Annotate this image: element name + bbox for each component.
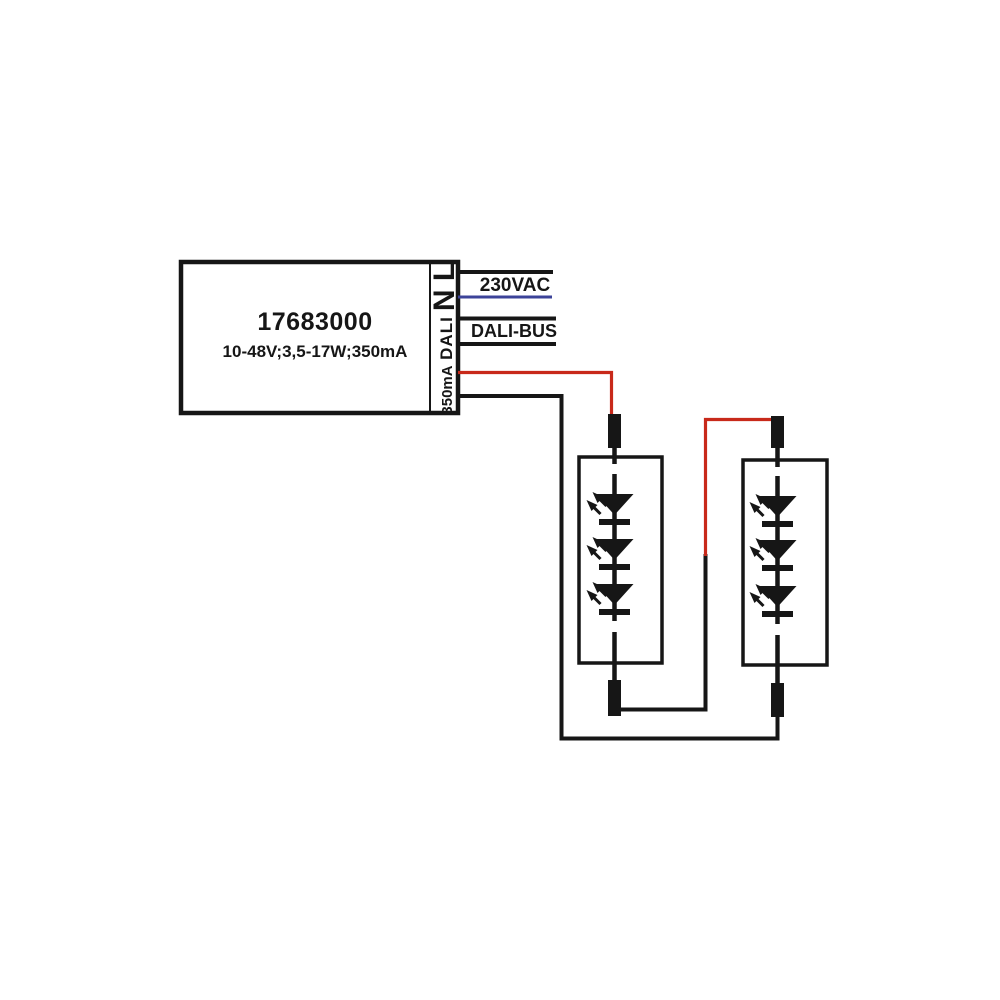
led-icon — [750, 494, 797, 527]
driver-model: 17683000 — [257, 308, 372, 336]
module-2-top-connector — [771, 416, 784, 448]
led-module-1 — [579, 414, 662, 716]
module-1-outline — [579, 457, 662, 663]
led-icon — [587, 582, 634, 615]
module-1-top-connector — [608, 414, 621, 448]
module-1-bottom-connector — [608, 680, 621, 716]
led-icon — [750, 584, 797, 617]
terminal-label-mains: N L — [428, 263, 461, 311]
driver-spec: 10-48V;3,5-17W;350mA — [223, 342, 408, 361]
led-icon — [750, 538, 797, 571]
wiring-diagram: 17683000 10-48V;3,5-17W;350mA N L DALI 3… — [0, 0, 1000, 1000]
led-module-2 — [743, 416, 827, 717]
label-dali-bus: DALI-BUS — [471, 321, 557, 341]
terminal-label-dali: DALI — [437, 316, 456, 360]
led-icon — [587, 537, 634, 570]
wire-series-link-red — [706, 420, 775, 557]
terminal-label-output: 350mA — [439, 365, 456, 414]
led-icon — [587, 492, 634, 525]
driver-box — [181, 262, 458, 413]
module-2-bottom-connector — [771, 683, 784, 717]
label-230vac: 230VAC — [480, 275, 551, 296]
diagram-canvas: 17683000 10-48V;3,5-17W;350mA N L DALI 3… — [0, 0, 1000, 1000]
module-2-outline — [743, 460, 827, 665]
